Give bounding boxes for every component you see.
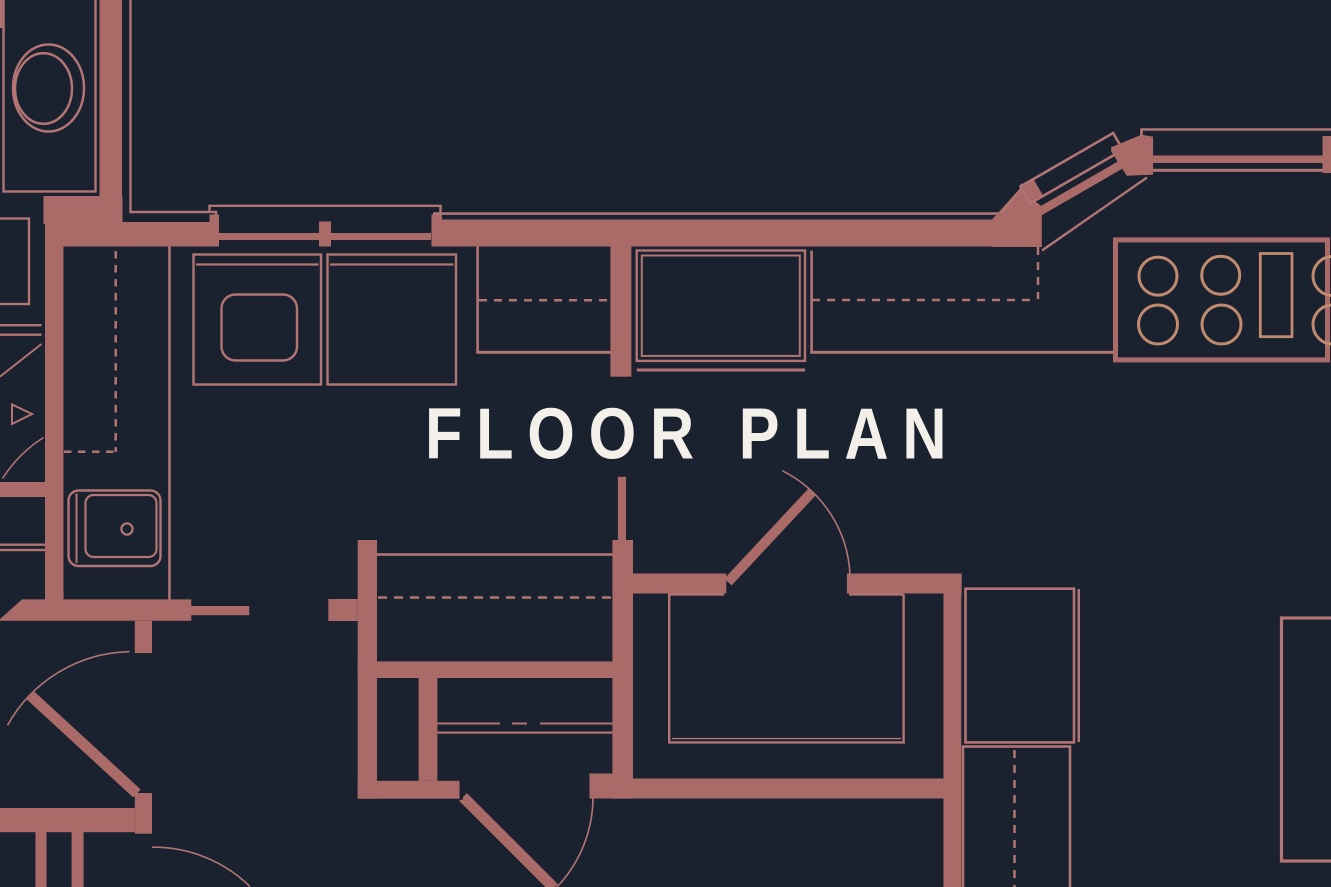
svg-text:FLOOR PLAN: FLOOR PLAN (425, 395, 960, 475)
